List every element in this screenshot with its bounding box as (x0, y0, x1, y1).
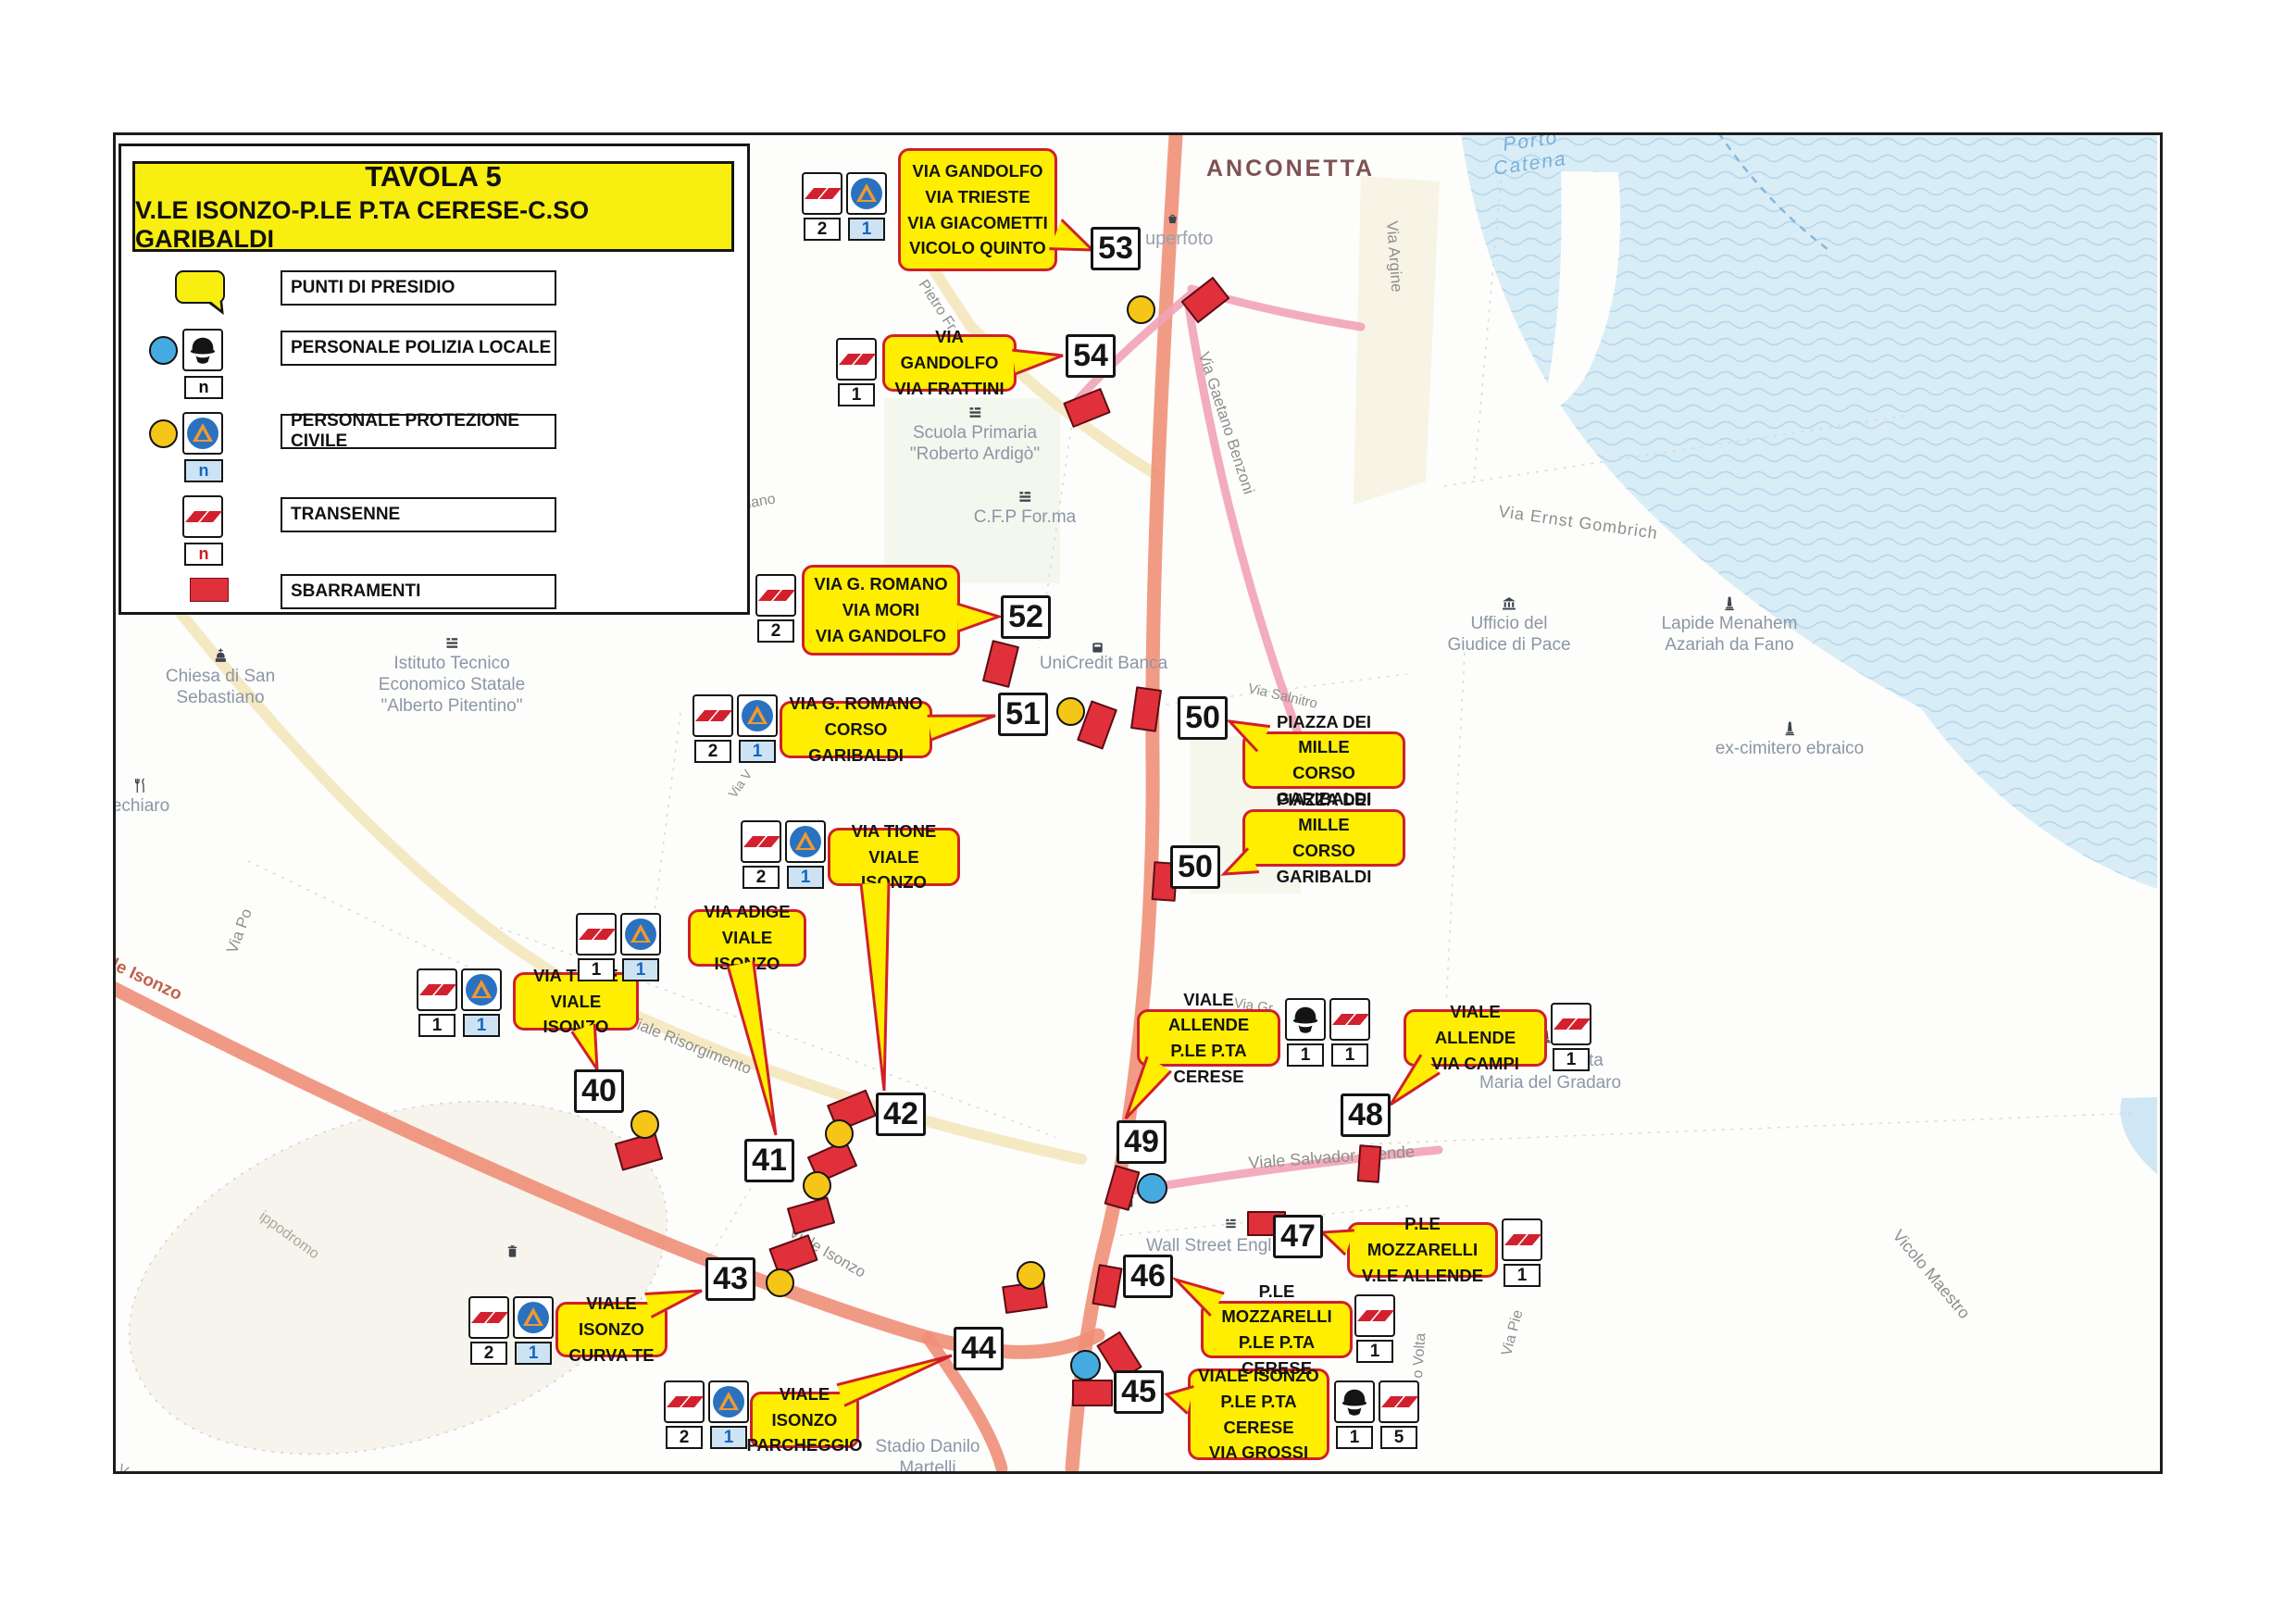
map-frame: ANCONETTAuperfotoVia ArginePortoCatenaPi… (113, 132, 2163, 1474)
legend-symbol (149, 572, 279, 648)
legend-label: PUNTI DI PRESIDIO (281, 270, 556, 306)
ippodromo-area (113, 1038, 712, 1474)
legend-symbol: n (149, 412, 279, 488)
map-title-line2: V.LE ISONZO-P.LE P.TA CERESE-C.SO GARIBA… (135, 196, 731, 254)
legend-label: PERSONALE POLIZIA LOCALE (281, 331, 556, 366)
legend-symbol: n (149, 495, 279, 571)
protezione-civile-icon (187, 418, 218, 449)
legend-item: nTRANSENNE (149, 495, 723, 571)
sbarramento-sample (190, 578, 229, 602)
legend-item: SBARRAMENTI (149, 572, 723, 648)
park-area (1190, 736, 1301, 893)
presidio-bubble-icon (175, 270, 225, 304)
legend-panel: TAVOLA 5 V.LE ISONZO-P.LE P.TA CERESE-C.… (119, 144, 750, 615)
police-icon-box (182, 329, 223, 371)
legend-symbol: n (149, 329, 279, 405)
transenne-icon-box (182, 495, 223, 538)
legend-label: SBARRAMENTI (281, 574, 556, 609)
count-box: n (184, 376, 223, 399)
protezione-civile-icon-box (182, 412, 223, 455)
school-area (884, 398, 1060, 583)
water-inlet (2120, 1097, 2157, 1174)
map-world: ANCONETTAuperfotoVia ArginePortoCatenaPi… (113, 132, 2163, 1474)
legend-label: PERSONALE PROTEZIONE CIVILE (281, 414, 556, 449)
legend-item: nPERSONALE PROTEZIONE CIVILE (149, 412, 723, 488)
count-box: n (184, 543, 223, 566)
protezione-civile-marker-sample (149, 419, 178, 448)
map-title-line1: TAVOLA 5 (365, 160, 502, 194)
transenne-icon (187, 504, 218, 530)
legend-item: nPERSONALE POLIZIA LOCALE (149, 329, 723, 405)
map-title-box: TAVOLA 5 V.LE ISONZO-P.LE P.TA CERESE-C.… (132, 161, 734, 252)
argine-area (1354, 176, 1440, 505)
viale-allende-road (1122, 1150, 1439, 1193)
police-helmet-icon (187, 334, 218, 366)
corso-garibaldi-road (1072, 135, 1176, 1468)
legend-label: TRANSENNE (281, 497, 556, 532)
polizia-marker-sample (149, 336, 178, 365)
count-box: n (184, 459, 223, 482)
